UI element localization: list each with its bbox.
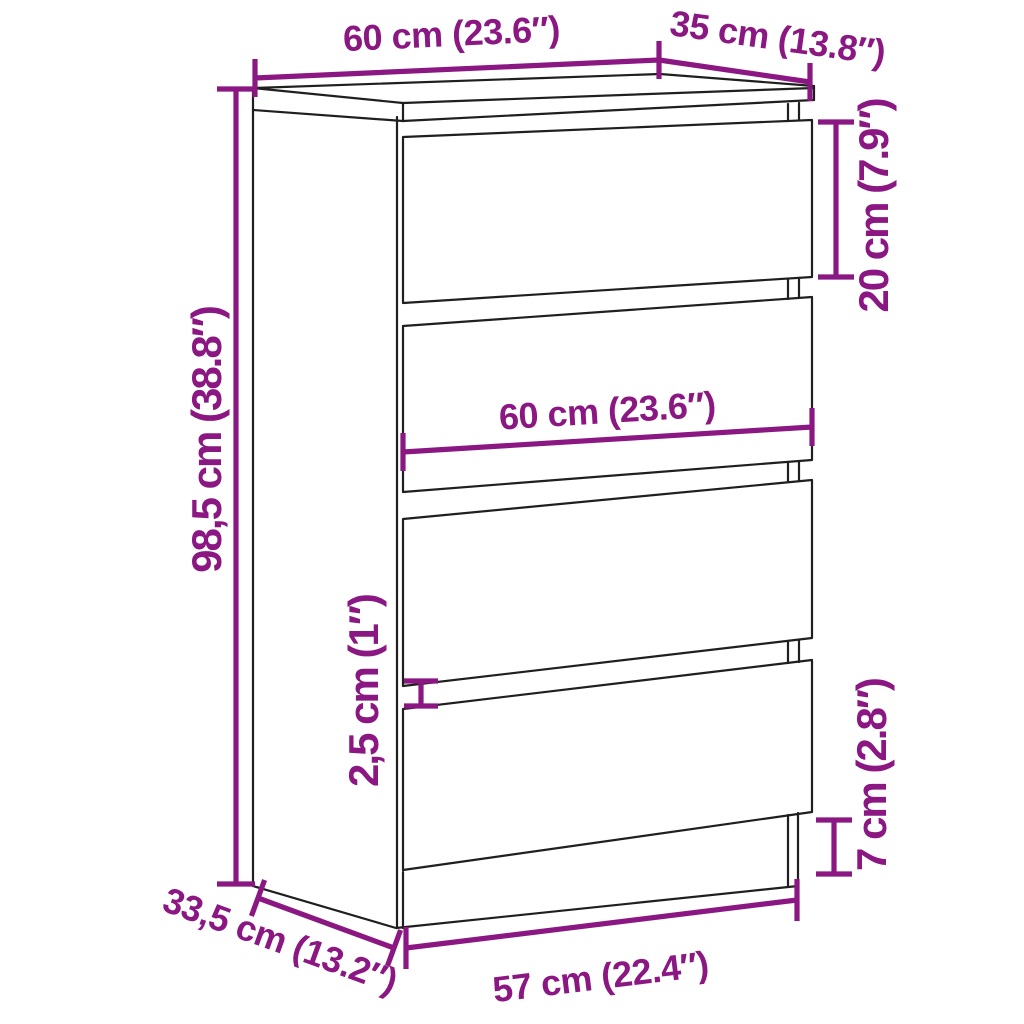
base-height-label: 7 cm (2.8″) bbox=[848, 679, 895, 871]
dimension-diagram: 60 cm (23.6″) 35 cm (13.8″) 20 cm (7.9″)… bbox=[0, 0, 1024, 1024]
dimension-drawer-height: 20 cm (7.9″) bbox=[818, 99, 897, 312]
top-depth-label: 35 cm (13.8″) bbox=[668, 2, 888, 73]
gap-3-edges bbox=[788, 640, 799, 663]
dimension-base-height: 7 cm (2.8″) bbox=[816, 679, 895, 874]
dimension-base-width: 57 cm (22.4″) bbox=[406, 879, 797, 1010]
chest-of-drawers-diagram: 60 cm (23.6″) 35 cm (13.8″) 20 cm (7.9″)… bbox=[0, 0, 1024, 1024]
gap-2-edges bbox=[788, 461, 799, 482]
dimension-top-depth: 35 cm (13.8″) bbox=[659, 2, 888, 101]
base-width-label: 57 cm (22.4″) bbox=[490, 943, 710, 1010]
dimension-top-width: 60 cm (23.6″) bbox=[255, 8, 659, 97]
gap-1-edges bbox=[788, 278, 799, 299]
drawer-4-front bbox=[403, 660, 812, 870]
dimension-overall-height: 98,5 cm (38.8″) bbox=[183, 89, 255, 884]
top-panel-inner-edge bbox=[253, 88, 814, 103]
drawer-height-label: 20 cm (7.9″) bbox=[850, 99, 897, 312]
gap-top-edges bbox=[788, 103, 799, 121]
drawer-1-front bbox=[403, 120, 812, 303]
overall-height-label: 98,5 cm (38.8″) bbox=[183, 307, 230, 573]
drawer-gap-label: 2,5 cm (1″) bbox=[340, 595, 387, 787]
cabinet-drawing bbox=[253, 74, 814, 928]
base-height-line bbox=[816, 820, 852, 874]
plinth-right-edges bbox=[788, 813, 798, 887]
drawer-height-line bbox=[818, 122, 854, 277]
drawer-3-front bbox=[403, 480, 812, 686]
top-panel-bottom-edge bbox=[253, 100, 814, 121]
top-width-label: 60 cm (23.6″) bbox=[342, 8, 561, 59]
dimension-base-depth: 33,5 cm (13.2″) bbox=[158, 879, 403, 1002]
